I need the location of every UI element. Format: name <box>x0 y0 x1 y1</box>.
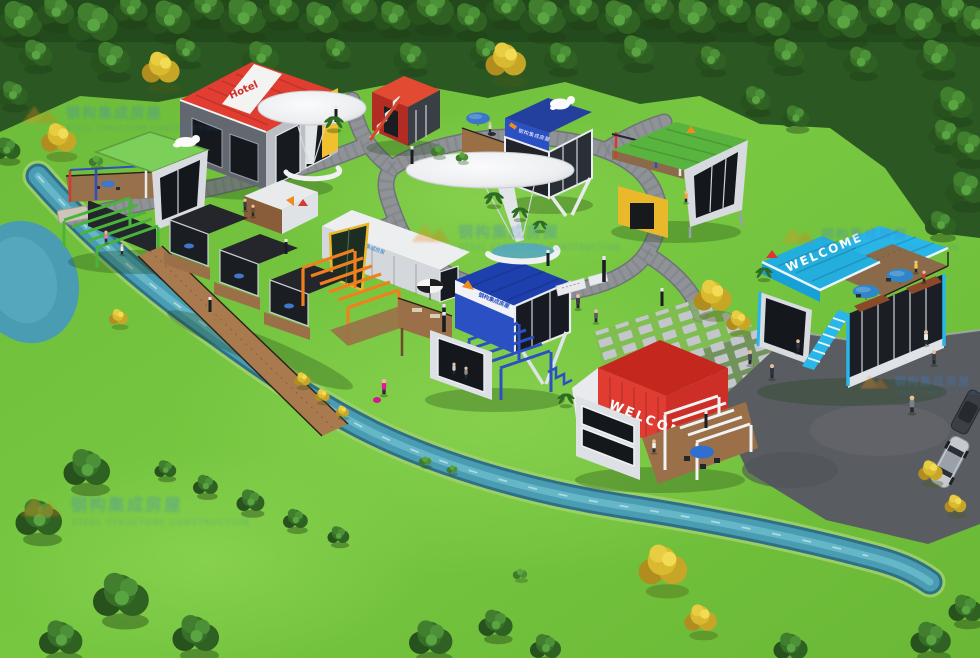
blue-round-table <box>101 181 115 188</box>
container-park-scene: 钢构集成房屋 STEEL STRUCTURE CONSTRUCTION <box>0 0 980 658</box>
blue-table <box>690 446 714 459</box>
render-stage: 钢构集成房屋 STEEL STRUCTURE CONSTRUCTION <box>0 0 980 658</box>
